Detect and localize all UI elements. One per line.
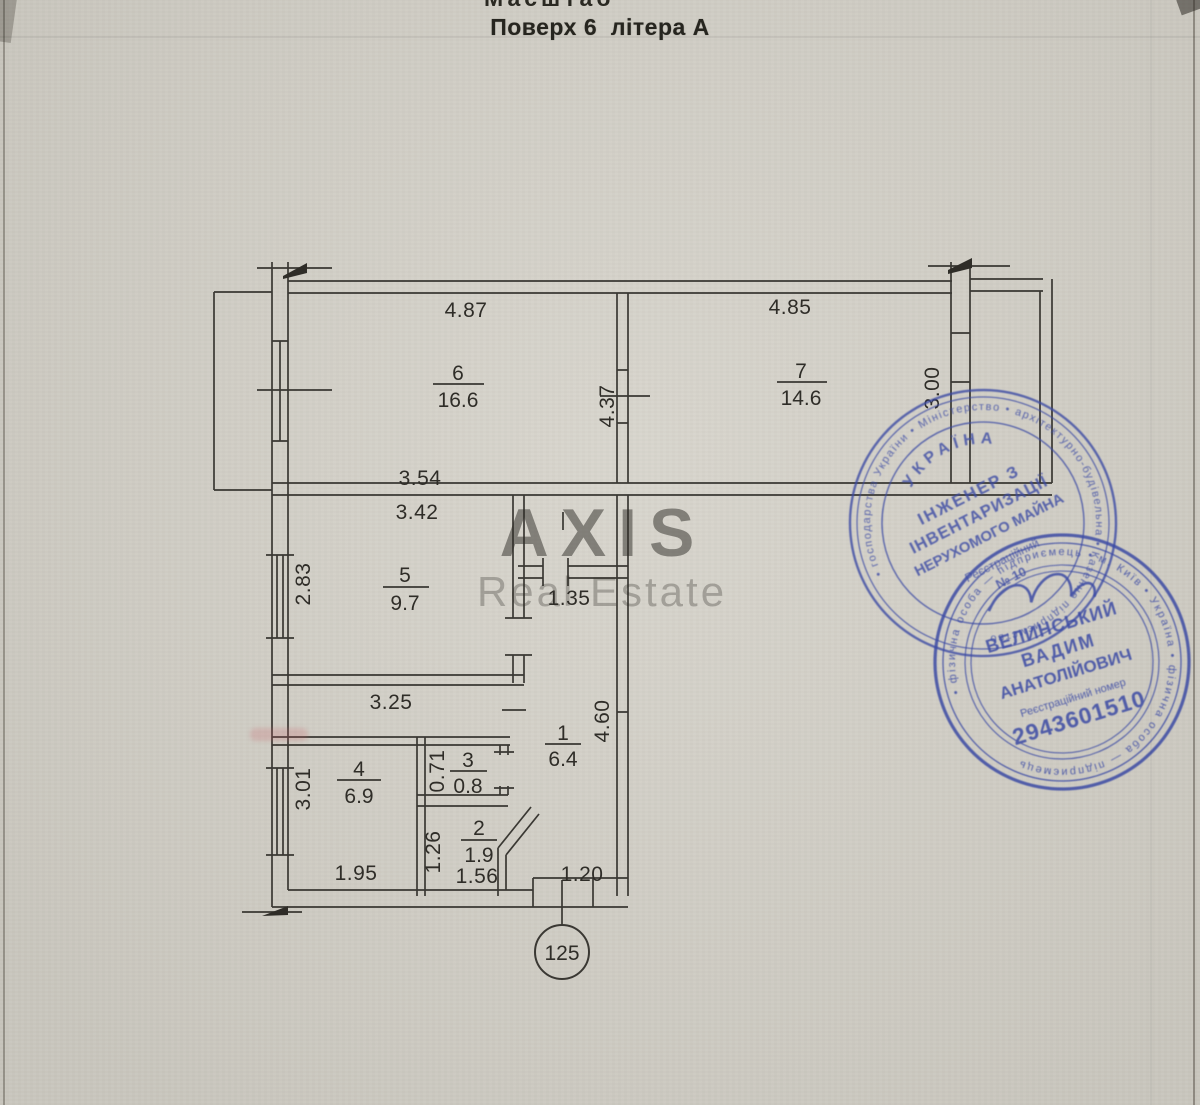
dim-rooms67-depth: 4.37	[596, 385, 619, 428]
stamp-person-ring-text: • фізична особа — підприємець • м. Київ …	[917, 517, 1200, 807]
dim-bath-left: 1.26	[422, 831, 445, 874]
room4-number: 4	[353, 758, 365, 781]
dim-wc-left: 0.71	[426, 750, 449, 793]
watermark: AXIS Real Estate	[477, 495, 727, 615]
dim-hall-right: 4.60	[591, 700, 614, 743]
dim-room5-left: 2.83	[292, 563, 315, 606]
room7-number: 7	[795, 360, 807, 383]
dim-room4-bottom: 1.95	[335, 862, 378, 885]
room7-area: 14.6	[781, 387, 822, 410]
scanned-floor-plan-page: Масштаб Поверх 6 літера А 125 4.87 4.85 …	[0, 0, 1200, 1105]
room6-number: 6	[452, 362, 464, 385]
dim-band-bottom: 3.25	[370, 691, 413, 714]
dim-room4-left: 3.01	[292, 768, 315, 811]
watermark-realestate: Real Estate	[477, 568, 727, 615]
room2-area: 1.9	[464, 844, 493, 867]
dim-room6-top: 4.87	[445, 299, 488, 322]
stamp-engineer: • господарства України • Міністерство • …	[804, 344, 1162, 702]
floor-plan-drawing: 125 4.87 4.85 3.54 3.42 1.35 3.25 1.95 1…	[0, 0, 1200, 1105]
dim-room5-top: 3.42	[396, 501, 439, 524]
room2-number: 2	[473, 817, 485, 840]
unit-number: 125	[544, 942, 579, 965]
room1-area: 6.4	[548, 748, 578, 771]
dim-room7-top: 4.85	[769, 296, 812, 319]
room4-area: 6.9	[344, 785, 373, 808]
room5-number: 5	[399, 564, 411, 587]
room5-area: 9.7	[390, 592, 419, 615]
watermark-axis: AXIS	[500, 495, 707, 571]
room3-area: 0.8	[453, 775, 482, 798]
room3-number: 3	[462, 749, 474, 772]
dim-room5-outer: 3.54	[399, 467, 442, 490]
room1-number: 1	[557, 722, 569, 745]
dim-entry-bottom: 1.20	[561, 863, 604, 886]
room6-area: 16.6	[438, 389, 479, 412]
dim-bath-bottom: 1.56	[456, 865, 499, 888]
